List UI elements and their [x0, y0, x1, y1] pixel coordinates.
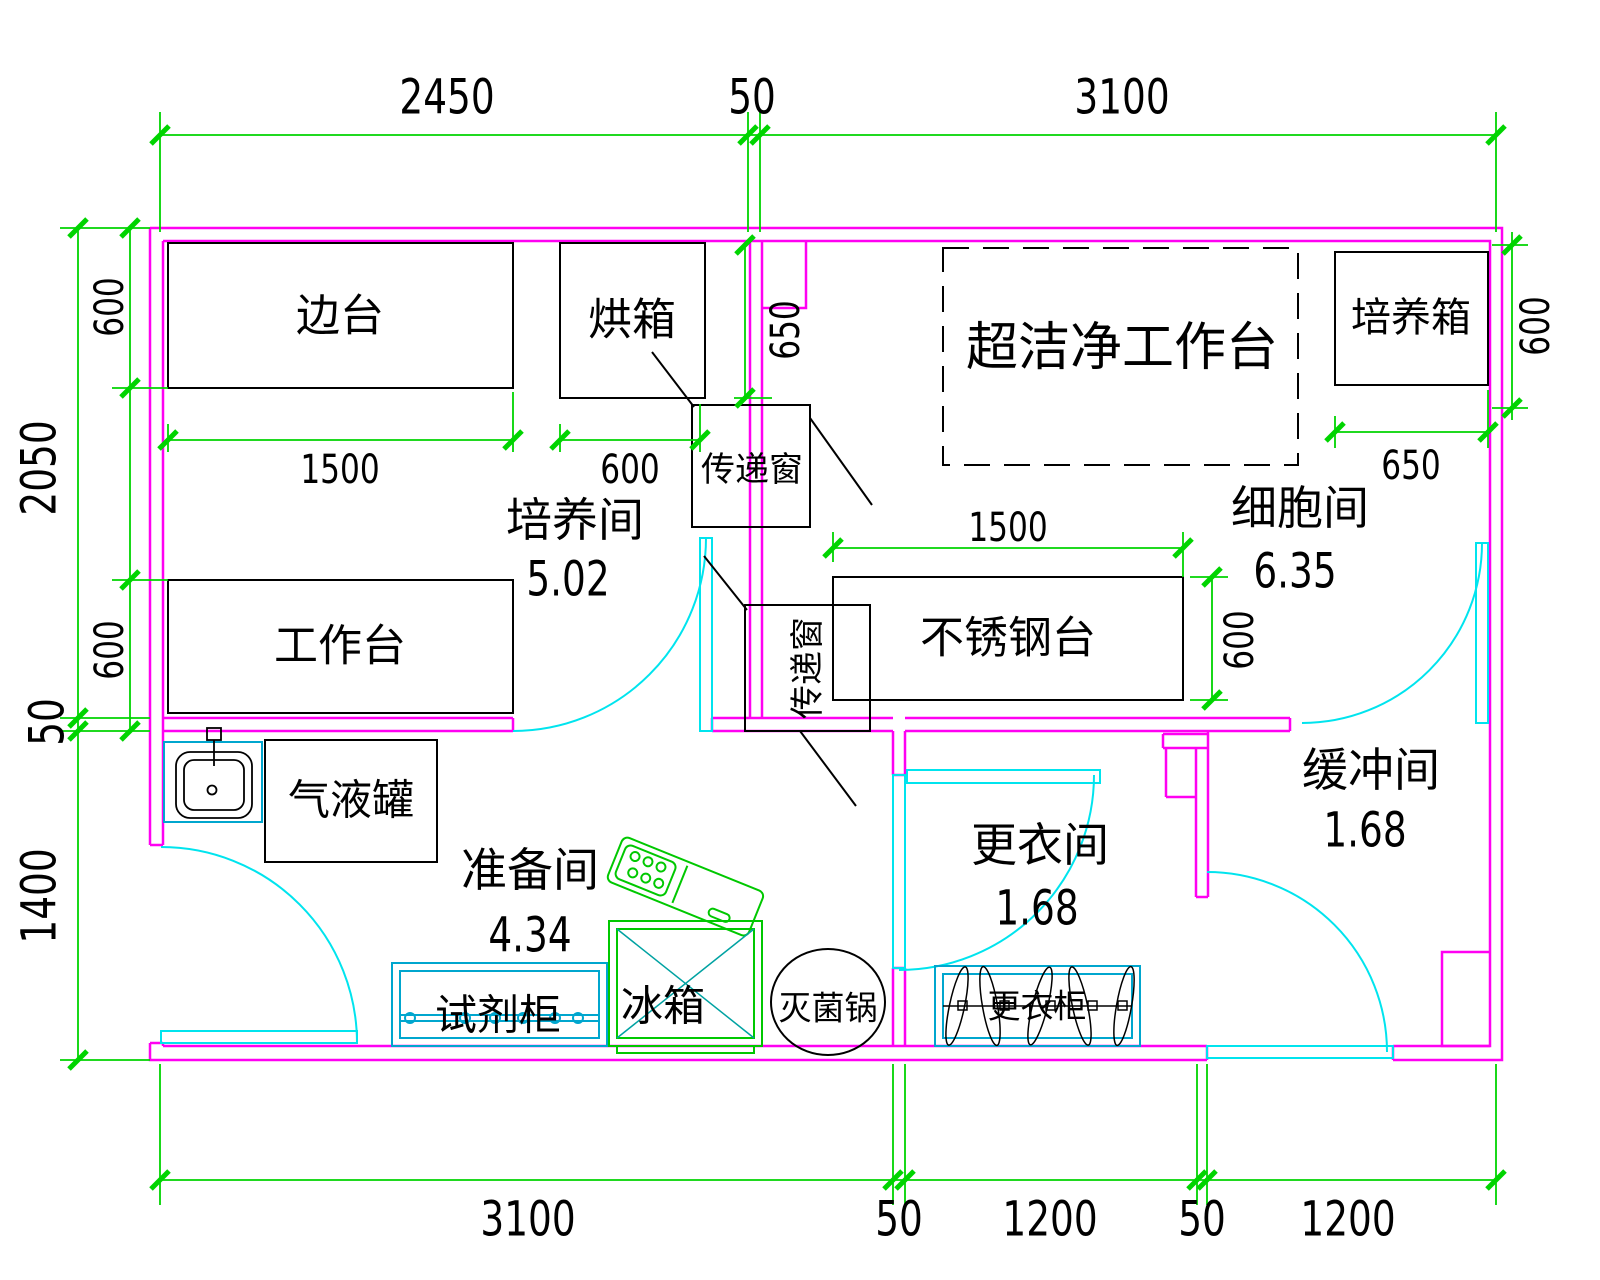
dim-steel-600: 600: [1217, 610, 1263, 670]
room-change-area: 1.68: [995, 881, 1078, 937]
dim-bottom-1200b: 1200: [1300, 1192, 1395, 1248]
change-room-bench: [907, 770, 1100, 783]
wall-change-buffer-divider: [1163, 731, 1208, 897]
label-oven: 烘箱: [588, 295, 676, 346]
room-buffer-area: 1.68: [1323, 803, 1406, 859]
label-clean-bench: 超洁净工作台: [966, 318, 1278, 378]
dim-incubator-650: 650: [1381, 443, 1441, 489]
door-leaf-cell-room: [1476, 543, 1488, 723]
room-culture-area: 5.02: [526, 552, 609, 608]
dim-left-2050: 2050: [12, 420, 68, 515]
label-stainless-table: 不锈钢台: [920, 613, 1096, 664]
door-leaf-culture-room: [700, 538, 712, 731]
floor-plan-canvas: 2450 50 3100 3100 50 1200 50 1200 2050 5…: [0, 0, 1600, 1280]
dim-top-2450: 2450: [399, 70, 494, 126]
label-fridge: 冰箱: [621, 982, 705, 1031]
dim-bottom-50b: 50: [1178, 1192, 1226, 1248]
dim-oven-600: 600: [600, 447, 660, 493]
equipment-labels: 边台 烘箱 传递窗 超洁净工作台 培养箱 工作台 不锈钢台 传递窗 气液罐 试剂…: [274, 291, 1471, 1040]
dim-bottom-3100: 3100: [480, 1192, 575, 1248]
dim-left-600a: 600: [87, 277, 133, 337]
door-leaf-buffer-room: [1207, 1046, 1393, 1058]
dimension-labels: 2450 50 3100 3100 50 1200 50 1200 2050 5…: [12, 70, 1559, 1248]
room-prep-area: 4.34: [488, 908, 571, 964]
room-change-name: 更衣间: [971, 818, 1109, 872]
dim-right-600: 600: [1513, 296, 1559, 356]
door-leaf-change-room: [893, 775, 905, 968]
room-cell-name: 细胞间: [1231, 481, 1369, 535]
dim-passbox-650: 650: [763, 300, 809, 360]
wall-horizontal-mid: [163, 718, 1290, 731]
label-wardrobe: 更衣柜: [988, 987, 1087, 1026]
dim-top-50: 50: [728, 70, 776, 126]
door-leaf-entry: [161, 1031, 357, 1043]
label-reagent-cabinet: 试剂柜: [435, 991, 561, 1040]
dim-bottom-1200a: 1200: [1002, 1192, 1097, 1248]
dim-left-1400: 1400: [12, 848, 68, 943]
corner-duct-notch: [1442, 952, 1490, 1046]
label-sterilizer: 灭菌锅: [779, 989, 878, 1028]
room-labels: 培养间 5.02 细胞间 6.35 准备间 4.34 更衣间 1.68 缓冲间 …: [461, 481, 1440, 964]
label-workbench: 工作台: [274, 621, 406, 672]
room-buffer-name: 缓冲间: [1302, 743, 1440, 797]
drain-icon: [208, 786, 217, 795]
wall-prep-change-divider: [893, 731, 905, 1046]
label-pass-window-top: 传递窗: [701, 450, 803, 490]
label-incubator: 培养箱: [1351, 295, 1471, 341]
room-prep-name: 准备间: [461, 843, 599, 897]
label-side-bench: 边台: [296, 291, 384, 342]
label-gas-liquid-tank: 气液罐: [288, 776, 414, 825]
room-culture-name: 培养间: [506, 493, 644, 547]
dim-bottom-50a: 50: [875, 1192, 923, 1248]
dim-left-600b: 600: [87, 620, 133, 680]
dim-bench-1500: 1500: [300, 447, 379, 493]
dim-steel-1500: 1500: [968, 505, 1047, 551]
dim-top-3100: 3100: [1074, 70, 1169, 126]
balance-scale: [606, 836, 765, 937]
dim-left-50: 50: [20, 698, 76, 746]
label-pass-window-mid: 传递窗: [788, 617, 828, 719]
room-cell-area: 6.35: [1253, 544, 1336, 600]
floor-plan-drawing: 2450 50 3100 3100 50 1200 50 1200 2050 5…: [0, 0, 1600, 1280]
